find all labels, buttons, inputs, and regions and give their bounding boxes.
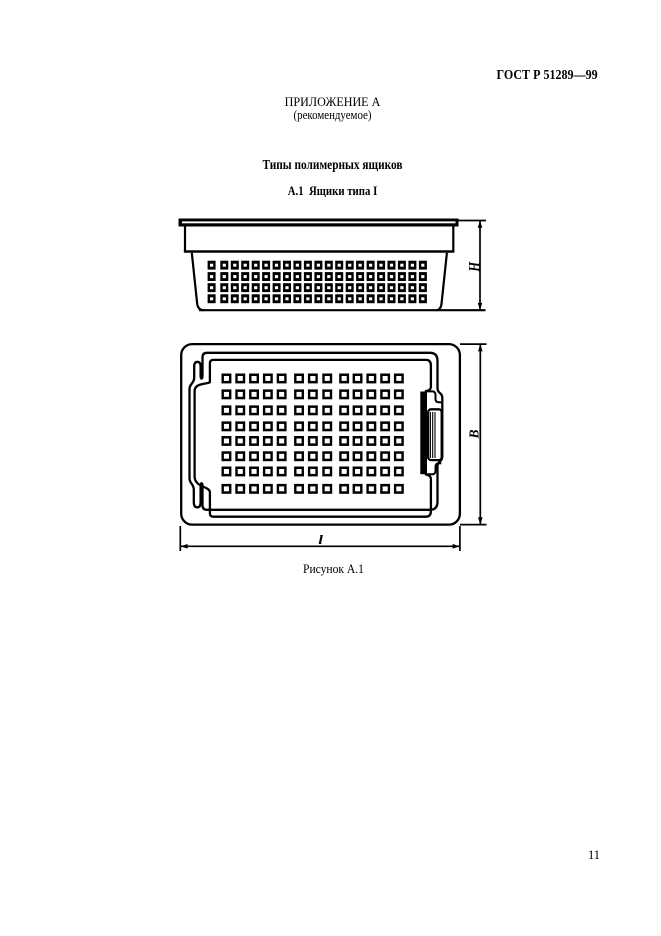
svg-text:В: В (466, 429, 481, 439)
svg-text:l: l (318, 534, 324, 547)
svg-text:Н: Н (466, 261, 483, 273)
